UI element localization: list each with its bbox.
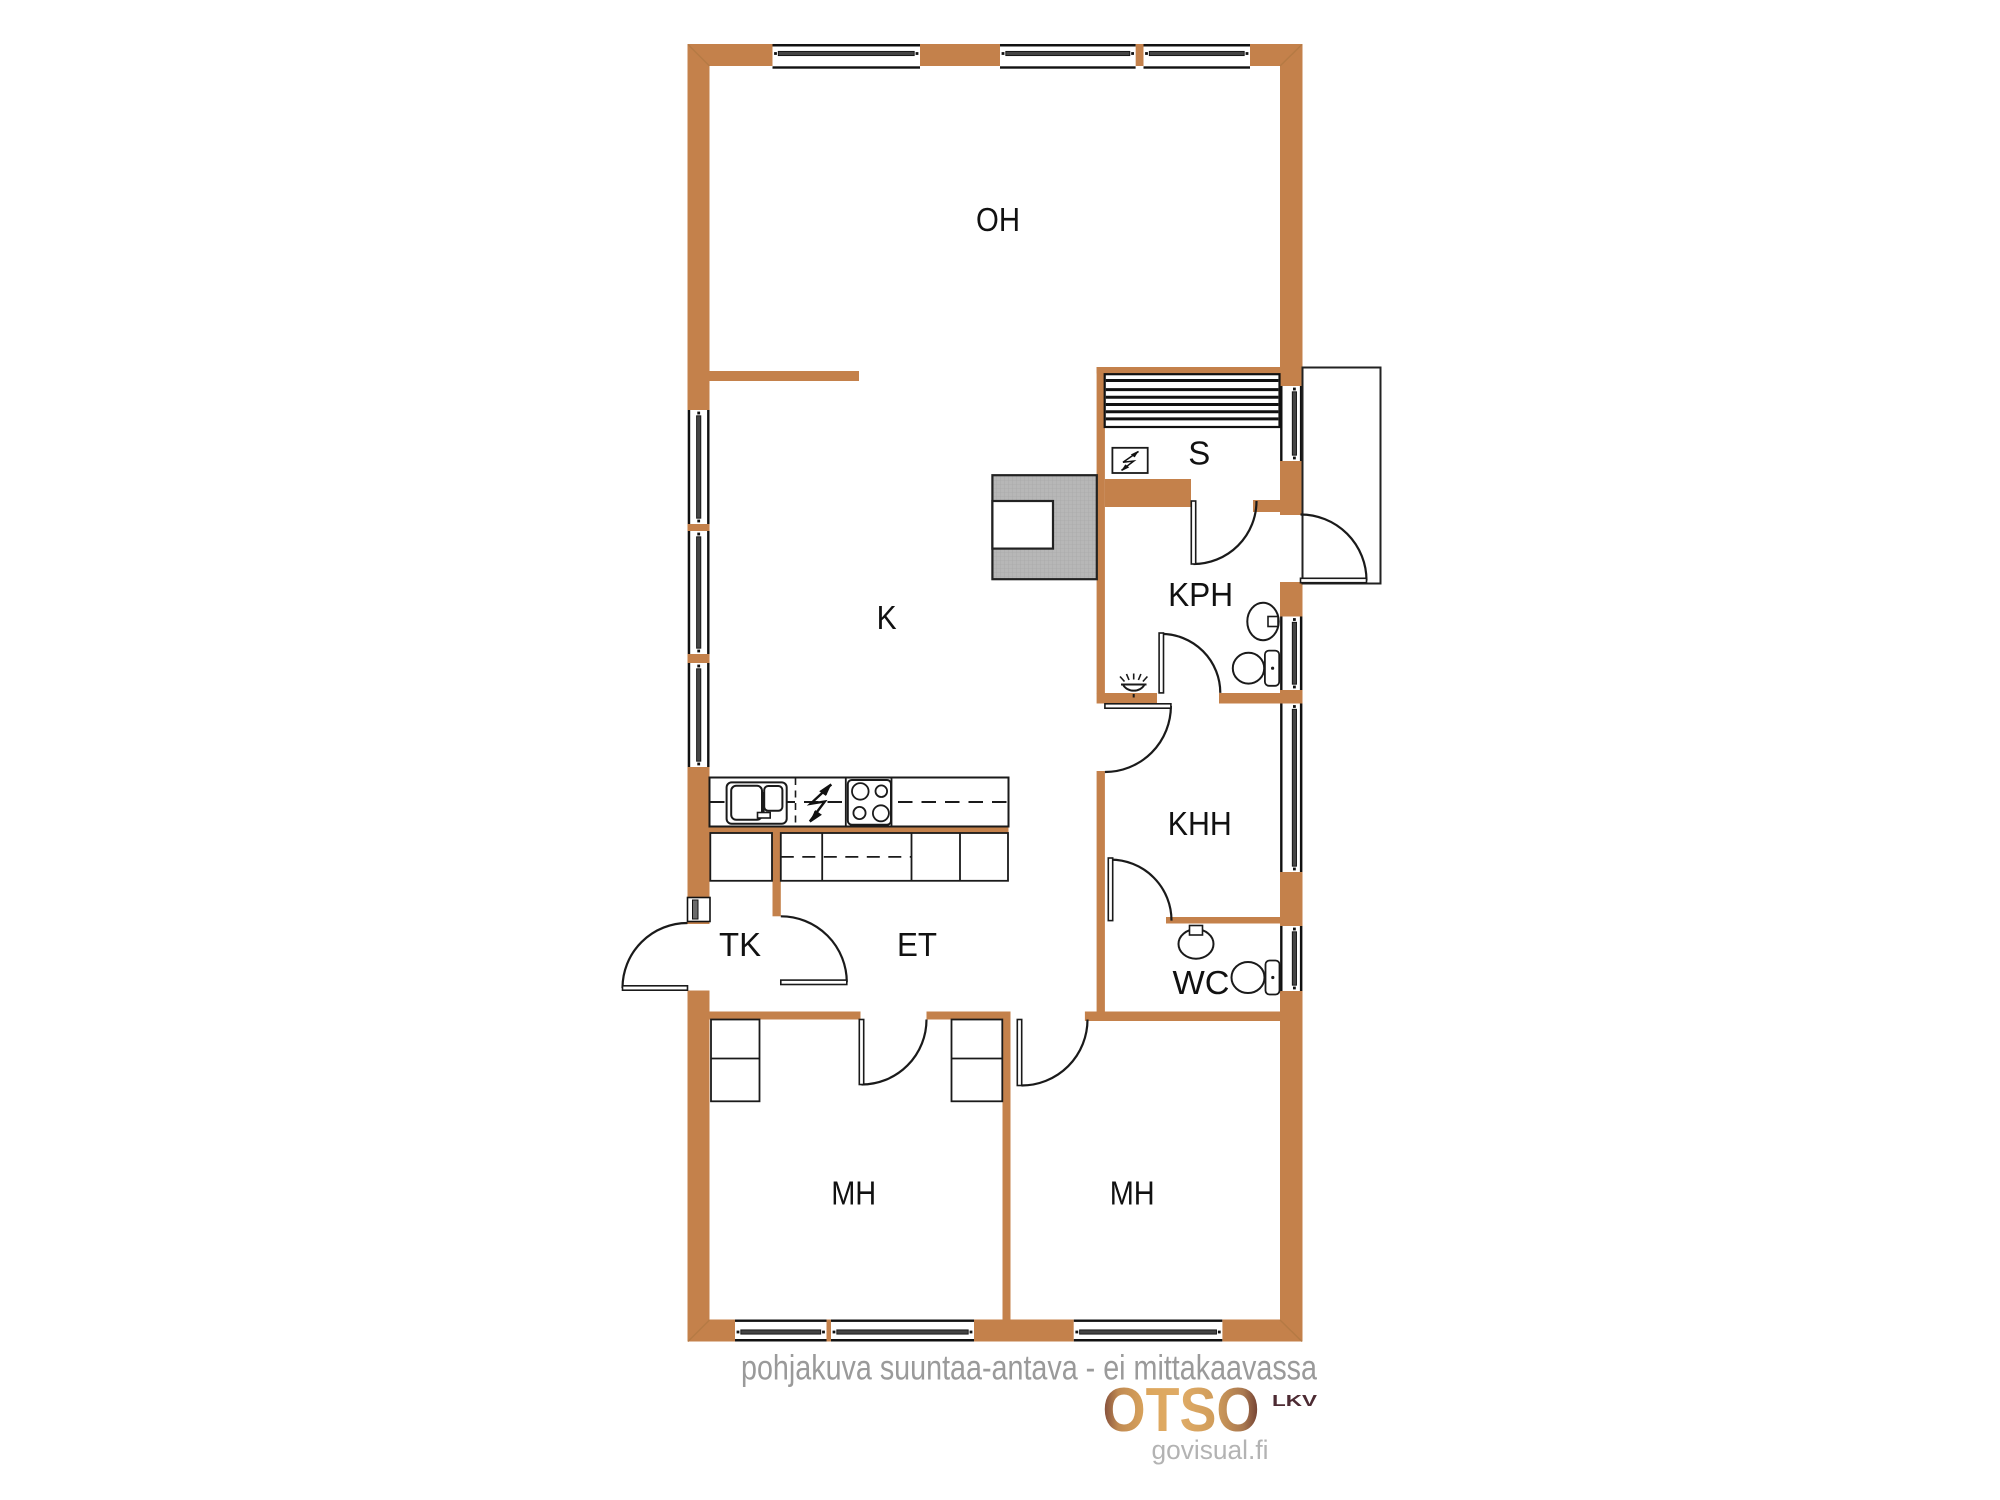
svg-text:LKV: LKV xyxy=(1272,1393,1317,1410)
svg-text:WC: WC xyxy=(1173,964,1230,1001)
svg-text:KHH: KHH xyxy=(1168,805,1232,842)
svg-text:govisual.fi: govisual.fi xyxy=(1152,1435,1269,1465)
svg-text:S: S xyxy=(1188,435,1210,472)
svg-text:OH: OH xyxy=(976,201,1020,238)
svg-text:MH: MH xyxy=(1110,1175,1155,1212)
svg-text:KPH: KPH xyxy=(1168,576,1233,613)
svg-text:ET: ET xyxy=(897,926,937,963)
svg-text:MH: MH xyxy=(831,1175,876,1212)
svg-text:TK: TK xyxy=(719,926,761,963)
svg-text:K: K xyxy=(877,599,897,636)
